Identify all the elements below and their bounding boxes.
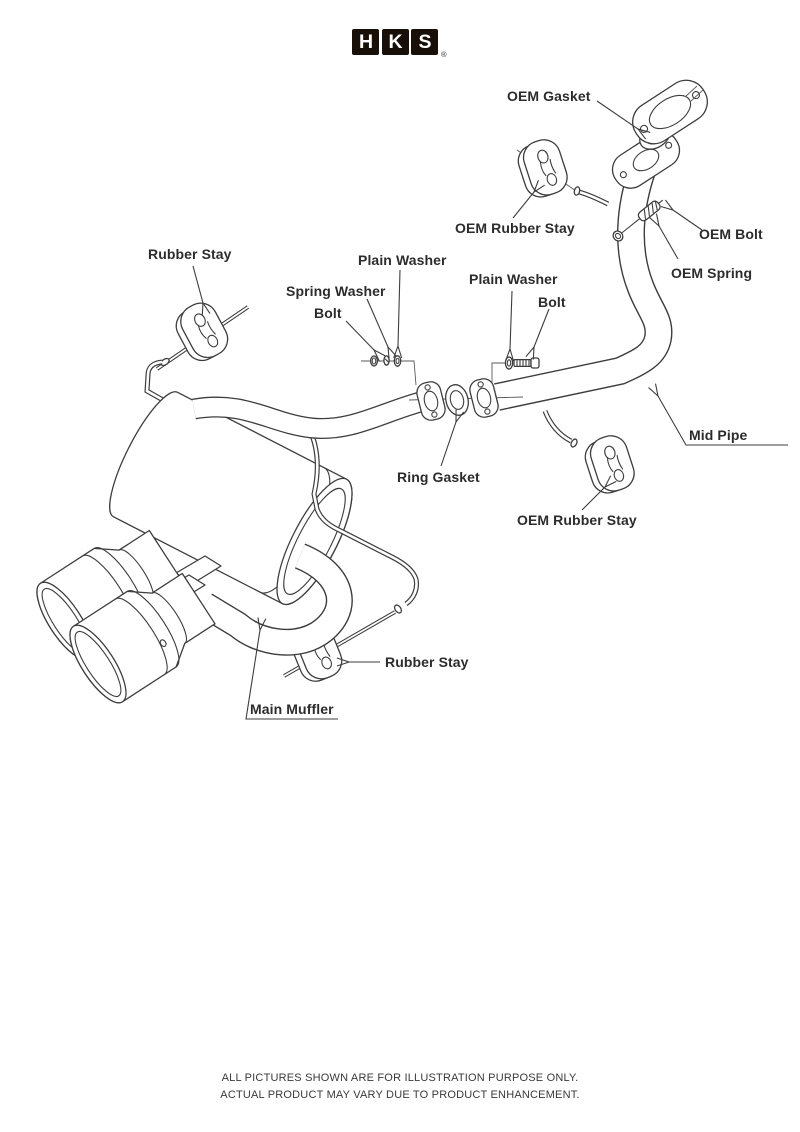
fastener-trio-drawing xyxy=(361,356,416,385)
page: H K S ® xyxy=(0,0,800,1132)
footer-disclaimer-line1: ALL PICTURES SHOWN ARE FOR ILLUSTRATION … xyxy=(0,1072,800,1084)
label-rubber-stay-bottom: Rubber Stay xyxy=(385,654,469,670)
leader-oem-bolt xyxy=(673,210,702,230)
footer-disclaimer-line2: ACTUAL PRODUCT MAY VARY DUE TO PRODUCT E… xyxy=(0,1089,800,1101)
exhaust-diagram xyxy=(0,0,800,1132)
label-plain-washer-right: Plain Washer xyxy=(469,271,558,287)
label-oem-rubber-stay-lower: OEM Rubber Stay xyxy=(517,512,637,528)
leader-rubber-stay-left xyxy=(193,266,203,303)
leader-oem-gasket xyxy=(597,101,638,129)
leader-plain-washer-left xyxy=(398,270,400,346)
label-oem-rubber-stay-top: OEM Rubber Stay xyxy=(455,220,575,236)
leader-oem-spring xyxy=(659,226,678,259)
label-plain-washer-left: Plain Washer xyxy=(358,252,447,268)
leader-spring-washer xyxy=(367,299,388,347)
leader-oem-rubber-stay-top xyxy=(513,192,534,218)
label-spring-washer: Spring Washer xyxy=(286,283,386,299)
oem-rubber-stay-top-drawing xyxy=(514,135,572,201)
label-rubber-stay-left: Rubber Stay xyxy=(148,246,232,262)
leader-bolt-left xyxy=(346,321,374,350)
label-bolt-right: Bolt xyxy=(538,294,566,310)
top-flange-stack-drawing xyxy=(606,73,715,195)
leader-ring-gasket xyxy=(441,422,456,466)
label-oem-gasket: OEM Gasket xyxy=(507,88,590,104)
label-oem-spring: OEM Spring xyxy=(671,265,752,281)
oem-rubber-stay-top-group xyxy=(514,135,608,204)
label-main-muffler: Main Muffler xyxy=(250,701,334,717)
oem-rubber-stay-lower-group xyxy=(545,411,638,497)
leader-oem-rubber-stay-lower xyxy=(582,487,605,510)
leader-bolt-right xyxy=(534,309,549,347)
label-oem-bolt: OEM Bolt xyxy=(699,226,763,242)
label-bolt-left: Bolt xyxy=(314,305,342,321)
label-mid-pipe: Mid Pipe xyxy=(689,427,747,443)
label-ring-gasket: Ring Gasket xyxy=(397,469,480,485)
leader-plain-washer-right xyxy=(510,291,512,349)
ring-gasket-drawing xyxy=(443,382,472,417)
oem-rubber-stay-lower-drawing xyxy=(581,431,639,497)
